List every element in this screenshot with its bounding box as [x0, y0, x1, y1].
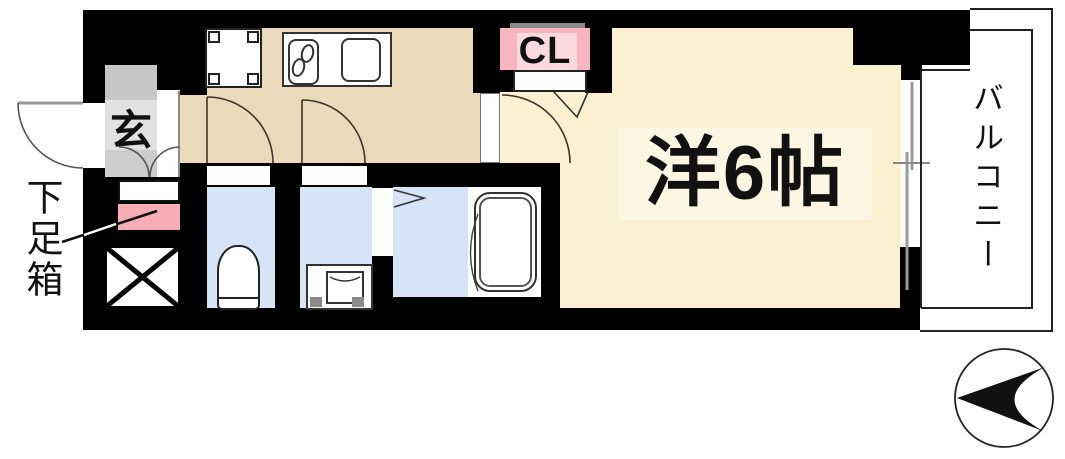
- floor-plan: 玄 下足箱 CL 洋6帖 バルコニー: [0, 0, 1065, 459]
- shoe-box-label: 下足箱: [14, 178, 68, 308]
- folding-door-icon: [394, 190, 424, 207]
- washroom-door-swing-icon: [302, 100, 365, 163]
- bath-door-arc: [471, 214, 479, 291]
- balcony-label: バルコニー: [963, 82, 1008, 312]
- shoe-box-leader-line-wall-pass: [84, 224, 116, 235]
- room-door-swing-icon: [502, 95, 570, 163]
- closet-label: CL: [500, 30, 590, 73]
- main-room-label: 洋6帖: [618, 128, 872, 220]
- genkan-label: 玄: [104, 97, 158, 158]
- closet-door-mark-icon: [553, 91, 588, 117]
- entrance-door-swing-icon: [18, 103, 83, 168]
- pipe-shaft-x-lines: [107, 248, 178, 306]
- washer-curve: [330, 277, 360, 281]
- toilet-door-swing-icon: [207, 97, 273, 163]
